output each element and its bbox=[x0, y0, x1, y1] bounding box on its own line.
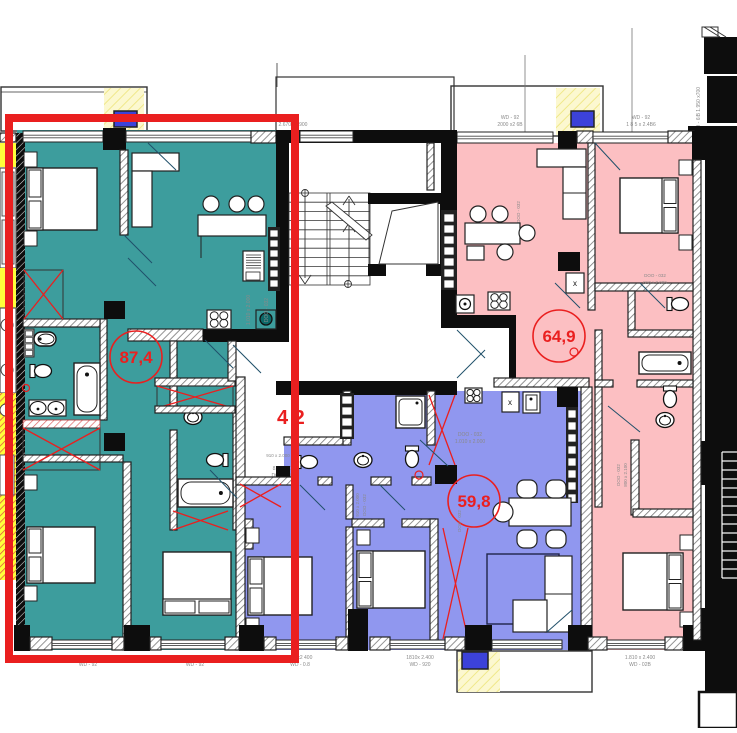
svg-text:WD - 92: WD - 92 bbox=[501, 115, 520, 121]
svg-text:1810x 2.400: 1810x 2.400 bbox=[406, 655, 434, 661]
svg-text:2000 x2 6B: 2000 x2 6B bbox=[497, 122, 523, 128]
svg-text:87,4: 87,4 bbox=[119, 348, 153, 367]
svg-text:DOO - 032: DOO - 032 bbox=[516, 201, 521, 223]
svg-text:1 8 5 x 2.4B6: 1 8 5 x 2.4B6 bbox=[626, 122, 656, 128]
svg-text:800 x 2.100: 800 x 2.100 bbox=[623, 463, 628, 487]
svg-text:810 x 2.000: 810 x 2.000 bbox=[643, 280, 667, 285]
svg-text:DOO - 032: DOO - 032 bbox=[264, 298, 270, 322]
svg-text:59,8: 59,8 bbox=[457, 492, 490, 511]
svg-text:4 2: 4 2 bbox=[277, 407, 305, 429]
svg-text:1.010 x 2.000: 1.010 x 2.000 bbox=[246, 295, 252, 326]
svg-text:x: x bbox=[573, 279, 577, 288]
svg-text:WD - 02B: WD - 02B bbox=[629, 662, 651, 668]
svg-text:1.810 x 2.400: 1.810 x 2.400 bbox=[625, 655, 656, 661]
svg-text:WD - 92: WD - 92 bbox=[632, 115, 651, 121]
svg-text:910 x 2.000: 910 x 2.000 bbox=[355, 493, 360, 517]
svg-text:DOO - 032: DOO - 032 bbox=[458, 432, 482, 438]
svg-text:DOO - 032: DOO - 032 bbox=[457, 510, 462, 532]
svg-text:64,9: 64,9 bbox=[542, 327, 575, 346]
svg-text:WD - 920: WD - 920 bbox=[409, 662, 430, 668]
svg-text:910 x 2.000: 910 x 2.000 bbox=[266, 453, 290, 458]
svg-text:DOO - 032: DOO - 032 bbox=[616, 464, 621, 486]
svg-text:1.010 x 2.000: 1.010 x 2.000 bbox=[455, 439, 486, 445]
svg-text:DOO - 032: DOO - 032 bbox=[644, 273, 666, 278]
svg-text:DOO - 032: DOO - 032 bbox=[362, 494, 367, 516]
svg-text:x: x bbox=[508, 398, 512, 407]
